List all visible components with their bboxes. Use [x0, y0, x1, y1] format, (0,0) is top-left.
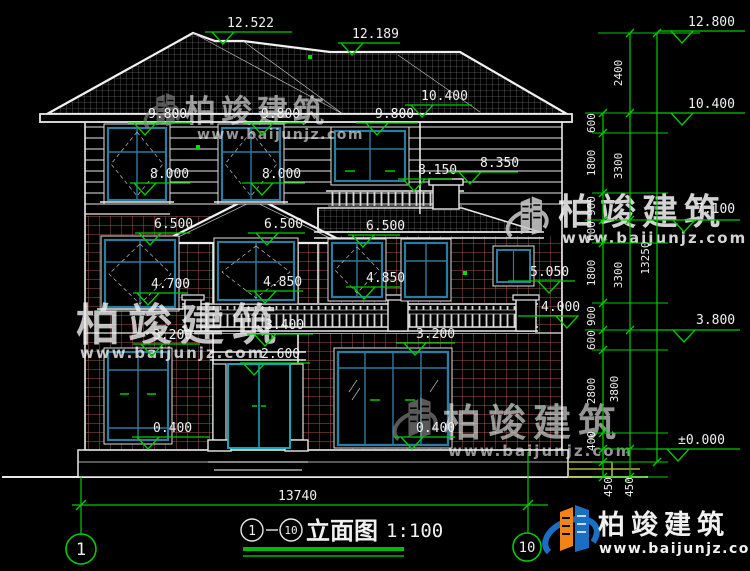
window-3f-left [100, 124, 174, 204]
elevation-mark-ridge: 12.189 [338, 27, 400, 55]
elevation-mark-right-top: 12.800 [658, 15, 745, 43]
entry-door [228, 364, 290, 448]
drawing-scale: 1:100 [386, 520, 443, 542]
svg-text:400: 400 [585, 431, 598, 451]
svg-text:450: 450 [602, 477, 615, 497]
svg-text:450: 450 [623, 477, 636, 497]
svg-text:9.800: 9.800 [148, 107, 187, 122]
svg-text:1: 1 [76, 540, 86, 560]
title-axis-start: 1 [248, 524, 256, 539]
svg-text:7.100: 7.100 [696, 202, 735, 217]
svg-text:3800: 3800 [608, 376, 621, 403]
svg-text:12.189: 12.189 [352, 27, 399, 42]
svg-text:6.500: 6.500 [366, 219, 405, 234]
svg-text:12.800: 12.800 [688, 15, 735, 30]
svg-text:4.000: 4.000 [541, 300, 580, 315]
watermark-url-text: www.baijunjz.com [448, 442, 633, 460]
window-2f-small [493, 246, 534, 286]
svg-text:600: 600 [585, 113, 598, 133]
elevation-drawing: 柏竣建筑 www.baijunjz.com 柏竣建筑 www.baijunjz.… [0, 0, 750, 571]
svg-text:±0.000: ±0.000 [678, 433, 725, 448]
svg-text:12.522: 12.522 [227, 16, 274, 31]
axis-circle-10: 10 [513, 533, 541, 561]
svg-text:6.500: 6.500 [154, 217, 193, 232]
svg-text:4.850: 4.850 [263, 275, 302, 290]
logo-glyph [545, 505, 597, 552]
svg-text:3.200: 3.200 [416, 327, 455, 342]
svg-text:600: 600 [585, 330, 598, 350]
svg-text:2400: 2400 [612, 60, 625, 87]
svg-text:3300: 3300 [612, 153, 625, 180]
svg-text:6.500: 6.500 [264, 217, 303, 232]
title-block: 1 10 立面图 1:100 [241, 517, 443, 556]
elevation-mark-right-f2: 3.800 [640, 313, 740, 342]
svg-text:0.400: 0.400 [153, 421, 192, 436]
watermark-url-text: www.baijunjz.com [80, 344, 265, 362]
svg-text:1800: 1800 [585, 150, 598, 177]
svg-text:3.400: 3.400 [265, 318, 304, 333]
svg-text:2.600: 2.600 [261, 347, 300, 362]
title-axis-end: 10 [284, 524, 297, 537]
elevation-mark-right-eave: 10.400 [650, 97, 745, 125]
svg-text:900: 900 [585, 196, 598, 216]
svg-text:8.150: 8.150 [418, 163, 457, 178]
svg-text:10.400: 10.400 [688, 97, 735, 112]
chimney [429, 179, 463, 209]
svg-text:5.050: 5.050 [530, 265, 569, 280]
svg-text:10: 10 [519, 540, 536, 556]
elevation-mark-peak: 12.522 [205, 16, 292, 44]
svg-text:9.800: 9.800 [261, 107, 300, 122]
logo-brand-text: 柏竣建筑 [598, 509, 730, 541]
axis-circle-1: 1 [66, 534, 96, 564]
svg-text:9.800: 9.800 [375, 107, 414, 122]
elevation-mark-ground: ±0.000 [646, 433, 740, 461]
svg-text:13250: 13250 [639, 241, 652, 274]
logo-url-text: www.baijunjz.com [599, 541, 750, 557]
svg-text:3.800: 3.800 [696, 313, 735, 328]
svg-text:1800: 1800 [585, 260, 598, 287]
svg-text:0.400: 0.400 [416, 421, 455, 436]
svg-text:3.200: 3.200 [153, 328, 192, 343]
svg-text:4.700: 4.700 [151, 277, 190, 292]
svg-text:3300: 3300 [612, 262, 625, 289]
svg-text:8.000: 8.000 [150, 167, 189, 182]
side-steps [568, 462, 646, 477]
watermark-url-text: www.baijunjz.com [197, 127, 364, 143]
svg-text:8.350: 8.350 [480, 156, 519, 171]
window-2f-right-b [401, 239, 451, 301]
cad-canvas: 柏竣建筑 www.baijunjz.com 柏竣建筑 www.baijunjz.… [0, 0, 750, 571]
overall-width-label: 13740 [278, 489, 317, 504]
footer-logo: 柏竣建筑 www.baijunjz.com [545, 505, 750, 557]
svg-text:900: 900 [585, 306, 598, 326]
drawing-title: 立面图 [306, 517, 378, 545]
svg-text:2800: 2800 [585, 378, 598, 405]
svg-text:600: 600 [585, 221, 598, 241]
svg-text:10.400: 10.400 [421, 89, 468, 104]
svg-text:8.000: 8.000 [262, 167, 301, 182]
svg-text:4.850: 4.850 [366, 271, 405, 286]
watermark-brand-text: 柏竣建筑 [185, 94, 329, 130]
